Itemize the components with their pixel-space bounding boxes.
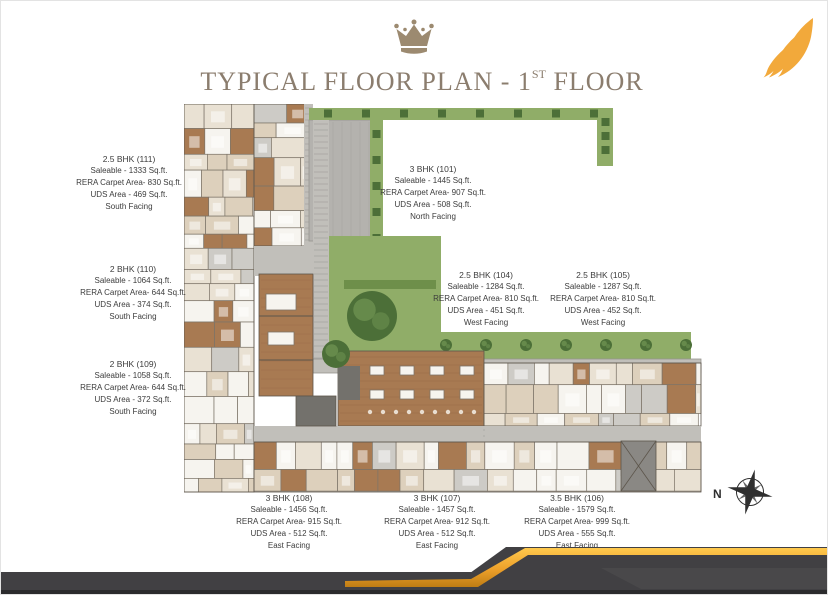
- unit-rera: RERA Carpet Area- 830 Sq.ft.: [43, 177, 215, 189]
- unit-saleable: Saleable - 1333 Sq.ft.: [43, 165, 215, 177]
- compass-rose-icon: [727, 469, 773, 515]
- unit-facing: North Facing: [347, 211, 519, 223]
- unit-saleable: Saleable - 1579 Sq.ft.: [491, 504, 663, 516]
- unit-label-101: 3 BHK (101) Saleable - 1445 Sq.ft. RERA …: [347, 163, 519, 223]
- crown-icon: [392, 19, 436, 61]
- page-title: TYPICAL FLOOR PLAN - 1ST FLOOR: [1, 67, 828, 97]
- unit-rera: RERA Carpet Area- 907 Sq.ft.: [347, 187, 519, 199]
- unit-name: 2 BHK (110): [47, 263, 219, 275]
- unit-rera: RERA Carpet Area- 644 Sq.ft.: [47, 287, 219, 299]
- unit-saleable: Saleable - 1456 Sq.ft.: [203, 504, 375, 516]
- unit-uds: UDS Area - 469 Sq.ft.: [43, 189, 215, 201]
- unit-rera: RERA Carpet Area- 810 Sq.ft.: [517, 293, 689, 305]
- unit-saleable: Saleable - 1064 Sq.ft.: [47, 275, 219, 287]
- floor-plan-page: TYPICAL FLOOR PLAN - 1ST FLOOR 2.5 BHK (…: [0, 0, 828, 595]
- unit-label-111: 2.5 BHK (111) Saleable - 1333 Sq.ft. RER…: [43, 153, 215, 213]
- unit-uds: UDS Area - 508 Sq.ft.: [347, 199, 519, 211]
- unit-name: 2 BHK (109): [47, 358, 219, 370]
- unit-facing: South Facing: [43, 201, 215, 213]
- footer-band: [1, 534, 828, 594]
- unit-label-105: 2.5 BHK (105) Saleable - 1287 Sq.ft. RER…: [517, 269, 689, 329]
- unit-name: 3.5 BHK (106): [491, 492, 663, 504]
- unit-uds: UDS Area - 452 Sq.ft.: [517, 305, 689, 317]
- title-superscript: ST: [532, 67, 546, 81]
- unit-name: 3 BHK (101): [347, 163, 519, 175]
- unit-facing: South Facing: [47, 406, 219, 418]
- unit-facing: South Facing: [47, 311, 219, 323]
- unit-rera: RERA Carpet Area- 644 Sq.ft.: [47, 382, 219, 394]
- unit-facing: West Facing: [517, 317, 689, 329]
- unit-label-110: 2 BHK (110) Saleable - 1064 Sq.ft. RERA …: [47, 263, 219, 323]
- compass-north-label: N: [713, 487, 722, 501]
- unit-uds: UDS Area - 374 Sq.ft.: [47, 299, 219, 311]
- title-text: TYPICAL FLOOR PLAN - 1: [200, 67, 532, 96]
- unit-name: 2.5 BHK (111): [43, 153, 215, 165]
- unit-saleable: Saleable - 1058 Sq.ft.: [47, 370, 219, 382]
- title-text-suffix: FLOOR: [546, 67, 644, 96]
- brand-logo-icon: [759, 15, 815, 81]
- unit-label-109: 2 BHK (109) Saleable - 1058 Sq.ft. RERA …: [47, 358, 219, 418]
- unit-saleable: Saleable - 1287 Sq.ft.: [517, 281, 689, 293]
- unit-name: 3 BHK (108): [203, 492, 375, 504]
- unit-saleable: Saleable - 1445 Sq.ft.: [347, 175, 519, 187]
- unit-rera: RERA Carpet Area- 915 Sq.ft.: [203, 516, 375, 528]
- unit-name: 2.5 BHK (105): [517, 269, 689, 281]
- unit-uds: UDS Area - 372 Sq.ft.: [47, 394, 219, 406]
- unit-rera: RERA Carpet Area- 999 Sq.ft.: [491, 516, 663, 528]
